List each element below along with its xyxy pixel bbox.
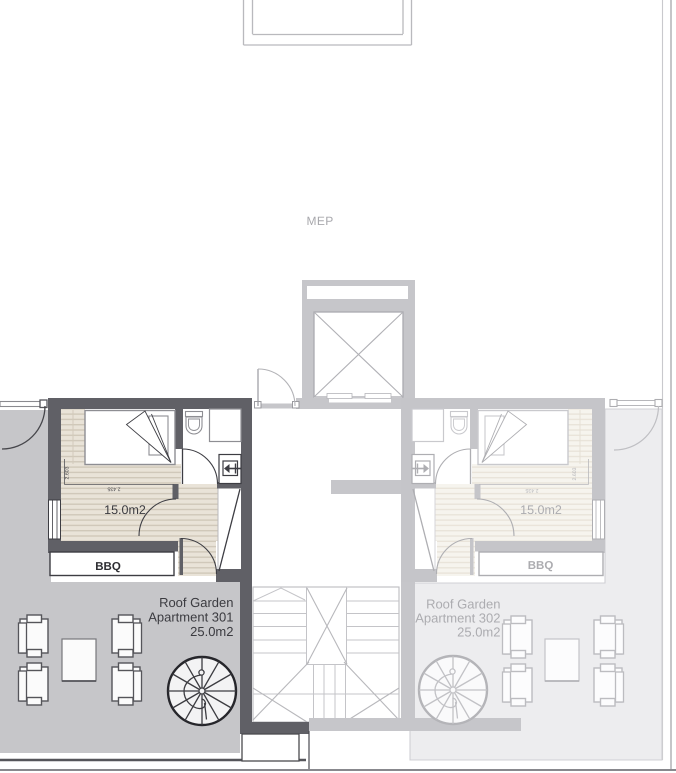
svg-text:2.435: 2.435	[525, 487, 538, 493]
svg-text:Roof Garden: Roof Garden	[426, 597, 500, 612]
svg-text:BBQ: BBQ	[95, 561, 121, 573]
svg-text:MEP: MEP	[307, 214, 334, 228]
svg-text:15.0m2: 15.0m2	[104, 503, 146, 517]
svg-text:Apartment 302: Apartment 302	[415, 611, 500, 626]
svg-text:2.603: 2.603	[572, 467, 578, 480]
svg-text:BBQ: BBQ	[528, 560, 554, 572]
svg-text:25.0m2: 25.0m2	[457, 625, 500, 640]
svg-text:Apartment 301: Apartment 301	[148, 610, 233, 625]
svg-text:2.435: 2.435	[107, 486, 120, 492]
svg-text:2.603: 2.603	[65, 466, 71, 479]
svg-text:15.0m2: 15.0m2	[520, 503, 562, 517]
svg-text:25.0m2: 25.0m2	[190, 624, 233, 639]
svg-text:Roof Garden: Roof Garden	[159, 595, 233, 610]
